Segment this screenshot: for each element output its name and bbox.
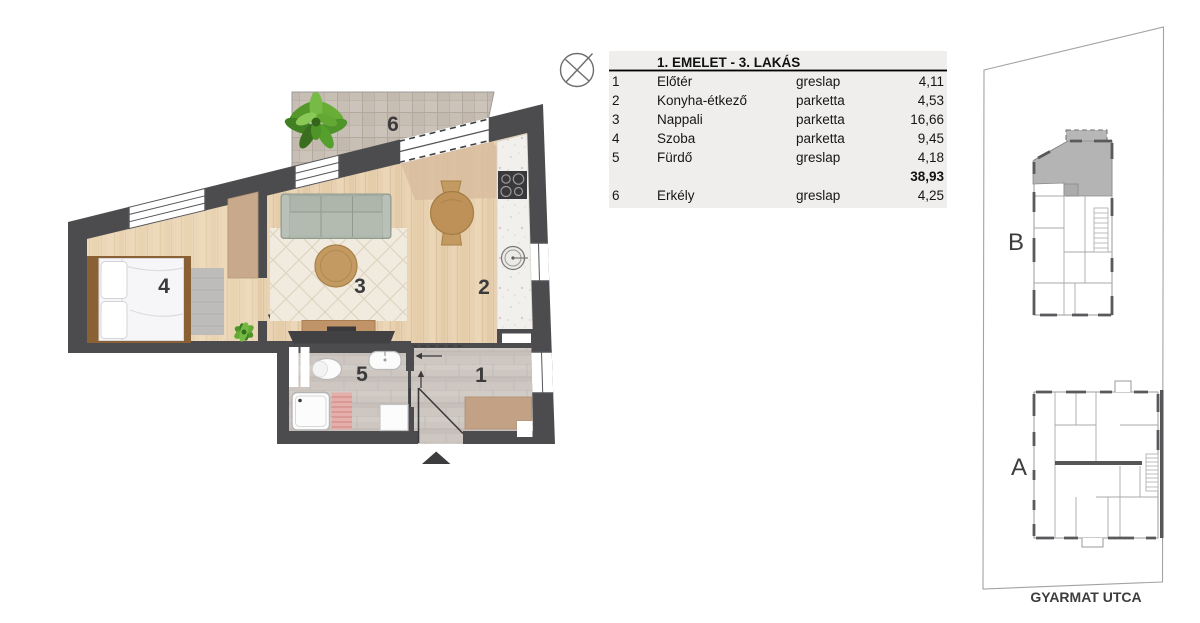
svg-text:1: 1 [612, 74, 620, 89]
svg-text:6: 6 [387, 113, 399, 136]
svg-text:parketta: parketta [796, 112, 845, 127]
svg-text:Szoba: Szoba [657, 131, 696, 146]
svg-text:GYARMAT UTCA: GYARMAT UTCA [1030, 589, 1141, 605]
svg-text:2: 2 [478, 276, 490, 299]
svg-text:Nappali: Nappali [657, 112, 703, 127]
svg-text:4,53: 4,53 [918, 93, 944, 108]
svg-text:3: 3 [354, 275, 366, 298]
svg-text:parketta: parketta [796, 131, 845, 146]
svg-text:5: 5 [356, 363, 368, 386]
svg-text:Előtér: Előtér [657, 74, 693, 89]
svg-text:5: 5 [612, 150, 620, 165]
svg-text:Fürdő: Fürdő [657, 150, 692, 165]
svg-text:3: 3 [612, 112, 620, 127]
svg-text:4,25: 4,25 [918, 188, 944, 203]
svg-text:greslap: greslap [796, 74, 840, 89]
svg-text:4: 4 [612, 131, 620, 146]
svg-text:9,45: 9,45 [918, 131, 944, 146]
svg-text:4: 4 [158, 275, 170, 298]
svg-text:greslap: greslap [796, 188, 840, 203]
svg-text:Konyha-étkező: Konyha-étkező [657, 93, 747, 108]
svg-text:parketta: parketta [796, 93, 845, 108]
svg-text:greslap: greslap [796, 150, 840, 165]
svg-text:A: A [1011, 454, 1027, 481]
svg-text:16,66: 16,66 [910, 112, 944, 127]
svg-text:1: 1 [475, 364, 487, 387]
svg-text:4,18: 4,18 [918, 150, 944, 165]
svg-text:4,11: 4,11 [919, 74, 944, 89]
svg-text:6: 6 [612, 188, 620, 203]
svg-text:Erkély: Erkély [657, 188, 695, 203]
svg-text:2: 2 [612, 93, 620, 108]
svg-text:B: B [1008, 229, 1024, 256]
svg-text:1. EMELET - 3. LAKÁS: 1. EMELET - 3. LAKÁS [657, 55, 800, 70]
svg-text:38,93: 38,93 [910, 169, 944, 184]
